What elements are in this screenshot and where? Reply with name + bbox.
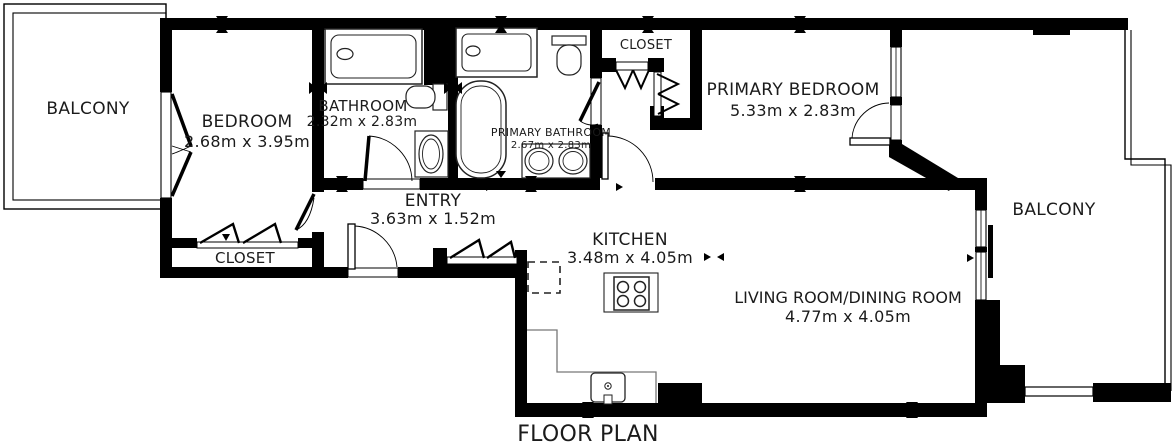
toilet-bowl [557,45,581,75]
wall-closet-post-left [165,238,197,248]
plan-caption: FLOOR PLAN [517,422,659,447]
toilet [406,84,447,110]
label-primary-bedroom: PRIMARY BEDROOM [706,80,879,100]
sink-faucet-dot [607,385,609,387]
cooktop [604,273,658,312]
label-balcony-left: BALCONY [46,99,130,119]
label-bedroom-dims: 2.68m x 3.95m [184,132,310,151]
wall-top [160,18,1128,30]
wall-living-east-c [975,300,1000,403]
balcony-door-threshold [161,92,171,198]
label-bedroom-closet: CLOSET [215,249,276,267]
shower-drain [466,46,480,56]
label-kitchen-dims: 3.48m x 4.05m [567,248,693,267]
label-bathroom-dims: 2.32m x 2.83m [307,114,418,130]
wall-closet-post-right [298,238,312,248]
wall-coat-closet-post [433,248,447,264]
primary-bedroom-door-leaf [602,133,608,179]
wall-bath-bottom-a [312,178,363,190]
entry-door-leaf [348,224,355,269]
wall-west-upper [160,18,172,92]
label-kitchen: KITCHEN [592,230,668,250]
wall-balcony-top-tick [1033,28,1070,35]
wall-pbedroom-east-mid [890,97,902,105]
sink-basin-inner [423,139,440,169]
wall-bath-bottom-b [420,178,600,190]
living-window [976,210,986,247]
label-living-dining: LIVING ROOM/DINING ROOM [734,288,962,307]
shower [456,28,537,77]
wall-kitchen-peninsula [658,383,702,405]
floor-plan-drawing: BALCONY BEDROOM 2.68m x 3.95m CLOSET BAT… [0,0,1176,448]
sink-tap [604,395,612,404]
label-primary-closet: CLOSET [620,38,672,53]
pbedroom-balcony-door-leaf [850,138,890,145]
wall-pbedroom-east-upper [890,30,902,47]
vanity-basin-left-inner [529,152,549,171]
pbedroom-balcony-door-frame [891,105,901,140]
wall-coat-closet-band [433,264,527,278]
label-bedroom: BEDROOM [202,112,293,132]
wall-living-east-a [975,187,987,210]
toilet-tank [552,36,586,45]
kitchen-sink [591,373,625,404]
wall-pcloset-east [690,30,702,130]
wall-pcloset-post-mid [648,58,664,72]
pbedroom-window [891,47,901,97]
wall-balcony-se [1093,383,1171,402]
label-living-dining-dims: 4.77m x 4.05m [785,307,911,326]
wall-pcloset-post-left [600,58,616,72]
label-bathroom: BATHROOM [318,97,407,115]
sink [415,131,448,177]
label-primary-bathroom-dims: 2.67m x 2.83m [511,140,591,151]
pcloset-track-horizontal [616,62,648,70]
label-entry-dims: 3.63m x 1.52m [370,209,496,228]
label-primary-bathroom: PRIMARY BATHROOM [491,126,611,139]
label-primary-bedroom-dims: 5.33m x 2.83m [730,101,856,120]
label-balcony-right: BALCONY [1012,200,1096,220]
vanity-basin-right-inner [563,152,583,171]
floor-plan: BALCONY BEDROOM 2.68m x 3.95m CLOSET BAT… [0,0,1176,448]
wall-bedroom-east-post [312,232,324,268]
railing-bottom [1025,387,1093,396]
slider-panel [988,225,993,278]
bedroom-closet-track [197,242,298,248]
wall-bath-divider-block [424,30,448,85]
bathroom-door-threshold [363,179,420,189]
toilet-bowl [406,86,435,108]
tub-faucet [337,49,353,60]
wall-entry-bottom-left [160,267,348,278]
label-entry: ENTRY [405,191,462,211]
bathtub [325,29,422,84]
wall-living-east-step [1000,365,1025,403]
coat-closet-track [447,257,517,264]
wall-living-east-b [975,247,987,252]
